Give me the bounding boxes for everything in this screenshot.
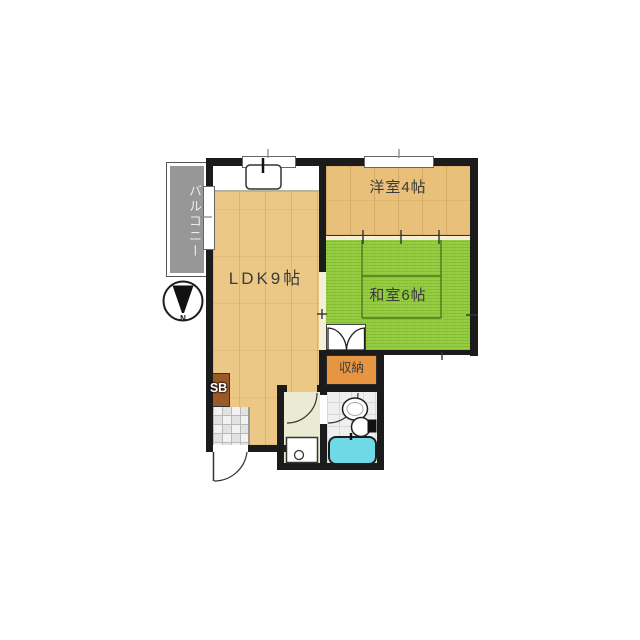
compass-n-label: N: [180, 314, 186, 323]
storage-label: 収納: [326, 362, 377, 376]
floor-plan: バルコニー: [0, 0, 640, 640]
wall-bathblock-left: [277, 385, 284, 470]
entry-door-gap: [213, 445, 248, 452]
kitchen-counter: [213, 166, 319, 192]
kitchen-window: [242, 156, 296, 168]
room-western: [326, 166, 470, 235]
compass: N: [164, 282, 203, 324]
room-bathroom: [327, 392, 377, 463]
balcony-window: [203, 186, 215, 250]
entry-door: [214, 452, 248, 481]
balcony-label: バルコニー: [173, 172, 201, 270]
shoebox-label: SB: [205, 382, 232, 396]
wall-bathblock-right: [377, 355, 384, 470]
wall-washroom-bath-a: [320, 392, 327, 395]
wall-japanese-bottom: [326, 350, 478, 355]
closet-door-area: [326, 324, 366, 350]
entry-tiles: [213, 407, 250, 445]
ldk-japanese-opening: [319, 272, 326, 350]
ldk-label: LDK9帖: [213, 270, 319, 289]
wall-bathblock-top-b: [317, 385, 384, 392]
room-washroom: [284, 392, 320, 463]
wall-right: [470, 158, 478, 356]
western-room-label: 洋室4帖: [326, 180, 470, 197]
wall-divider-top: [319, 158, 326, 272]
wall-bathblock-bottom: [277, 463, 384, 470]
western-room-window: [364, 156, 434, 168]
japanese-room-label: 和室6帖: [326, 288, 470, 305]
wall-bathblock-top-a: [277, 385, 287, 392]
wall-washroom-bath-b: [320, 424, 327, 463]
